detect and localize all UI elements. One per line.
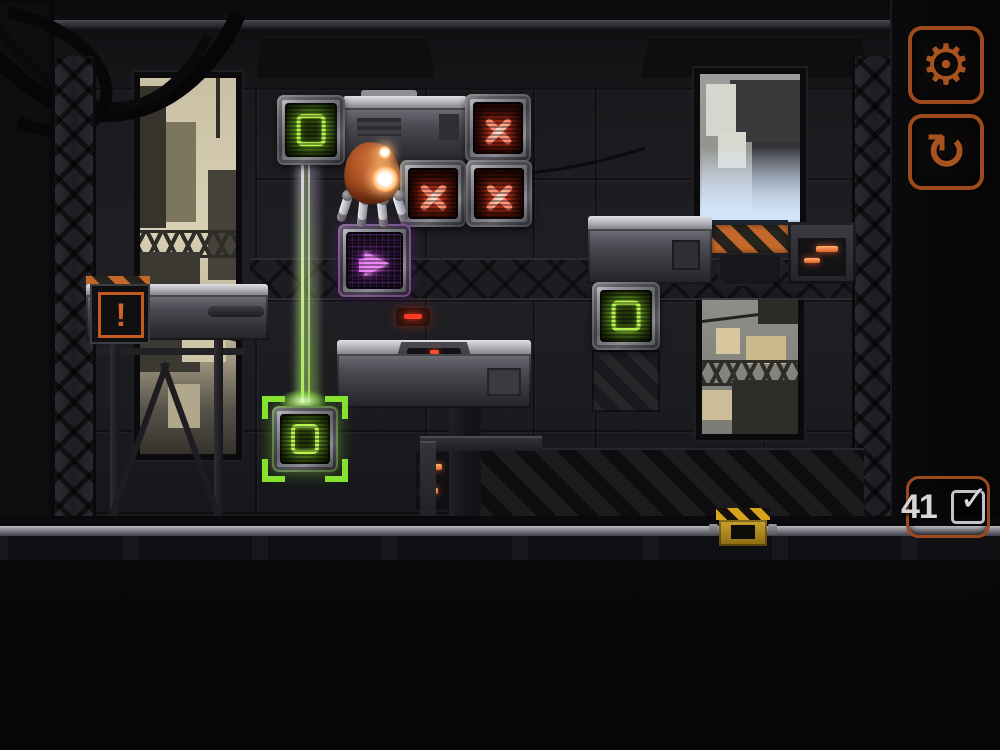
laser-beam xyxy=(301,163,304,403)
settings-button[interactable]: ⚙ xyxy=(908,26,984,104)
robot-eye-large xyxy=(372,166,398,192)
crate-screen xyxy=(280,414,330,464)
control-panel xyxy=(798,238,846,276)
level-number: 41 xyxy=(901,488,937,527)
striped-duct xyxy=(452,448,864,518)
orange-led xyxy=(804,258,820,263)
floor-rail xyxy=(0,526,1000,536)
purple-arrow-crate[interactable]: ▶ xyxy=(338,224,411,297)
floor-panels xyxy=(0,536,1000,560)
crate-screen xyxy=(285,103,337,157)
crate-screen xyxy=(474,168,524,219)
warning-sign: ! xyxy=(98,292,144,338)
wall-indicator xyxy=(396,308,430,326)
slider-clamp xyxy=(709,524,718,535)
machine-platform-middle[interactable] xyxy=(337,340,531,408)
machine-vent xyxy=(357,118,401,136)
slider-body xyxy=(719,520,767,546)
slider-hazard-cap xyxy=(716,508,770,520)
warning-box: ! xyxy=(90,284,150,344)
panel-detail xyxy=(439,114,459,140)
target-crate xyxy=(272,406,338,472)
floor-reflection: ! xyxy=(0,560,1000,750)
exclamation-icon: ! xyxy=(116,299,127,331)
scanlines xyxy=(474,168,524,219)
panel-detail xyxy=(487,368,521,396)
green-target-socket xyxy=(262,396,348,482)
scanlines xyxy=(473,102,523,154)
platform-top xyxy=(588,216,712,229)
machine-top xyxy=(343,96,467,108)
hazard-stripe-band xyxy=(712,225,788,253)
pipe-horizontal xyxy=(420,436,542,451)
rail-slider[interactable] xyxy=(716,508,770,548)
scanlines xyxy=(346,232,403,289)
level-scene: ! xyxy=(0,0,1000,560)
crate-screen xyxy=(408,168,458,219)
green-symbol-crate[interactable] xyxy=(592,282,660,350)
restart-icon: ↻ xyxy=(925,127,967,177)
scanlines xyxy=(600,290,652,342)
control-box xyxy=(788,222,856,284)
robot-character[interactable] xyxy=(336,142,410,228)
check-mark: ✓ xyxy=(960,479,989,519)
restart-button[interactable]: ↻ xyxy=(908,114,984,190)
panel-detail xyxy=(672,240,700,270)
scaffold-brace xyxy=(160,362,222,518)
crate-screen xyxy=(473,102,523,154)
support-pillar xyxy=(449,408,481,528)
slider-clamp xyxy=(768,524,777,535)
red-x-crate[interactable] xyxy=(466,160,532,227)
scaffold xyxy=(96,340,246,528)
level-badge[interactable]: 41 ✓ xyxy=(906,476,990,538)
machine-base xyxy=(718,253,782,286)
scanlines xyxy=(285,103,337,157)
scanlines xyxy=(408,168,458,219)
hazard-striped-machine[interactable] xyxy=(712,220,788,286)
pipe-elbow xyxy=(420,441,436,528)
green-symbol-crate[interactable] xyxy=(277,95,345,165)
scanlines xyxy=(280,414,330,464)
checkbox-checked-icon: ✓ xyxy=(951,490,985,524)
crate-screen: ▶ xyxy=(346,232,403,289)
crate-screen xyxy=(600,290,652,342)
red-led xyxy=(404,314,422,319)
red-x-crate[interactable] xyxy=(465,94,531,162)
gear-icon: ⚙ xyxy=(921,37,971,93)
game-screen: ! xyxy=(0,0,1000,750)
slider-slot xyxy=(731,525,755,539)
robot-eye-small xyxy=(378,146,391,159)
laser-beam xyxy=(308,163,310,403)
piston-detail xyxy=(208,306,264,317)
machine-platform-right[interactable] xyxy=(588,216,712,284)
orange-led xyxy=(816,246,838,252)
hazard-wall-panel xyxy=(592,350,660,412)
laser-beam-glow xyxy=(294,163,320,403)
